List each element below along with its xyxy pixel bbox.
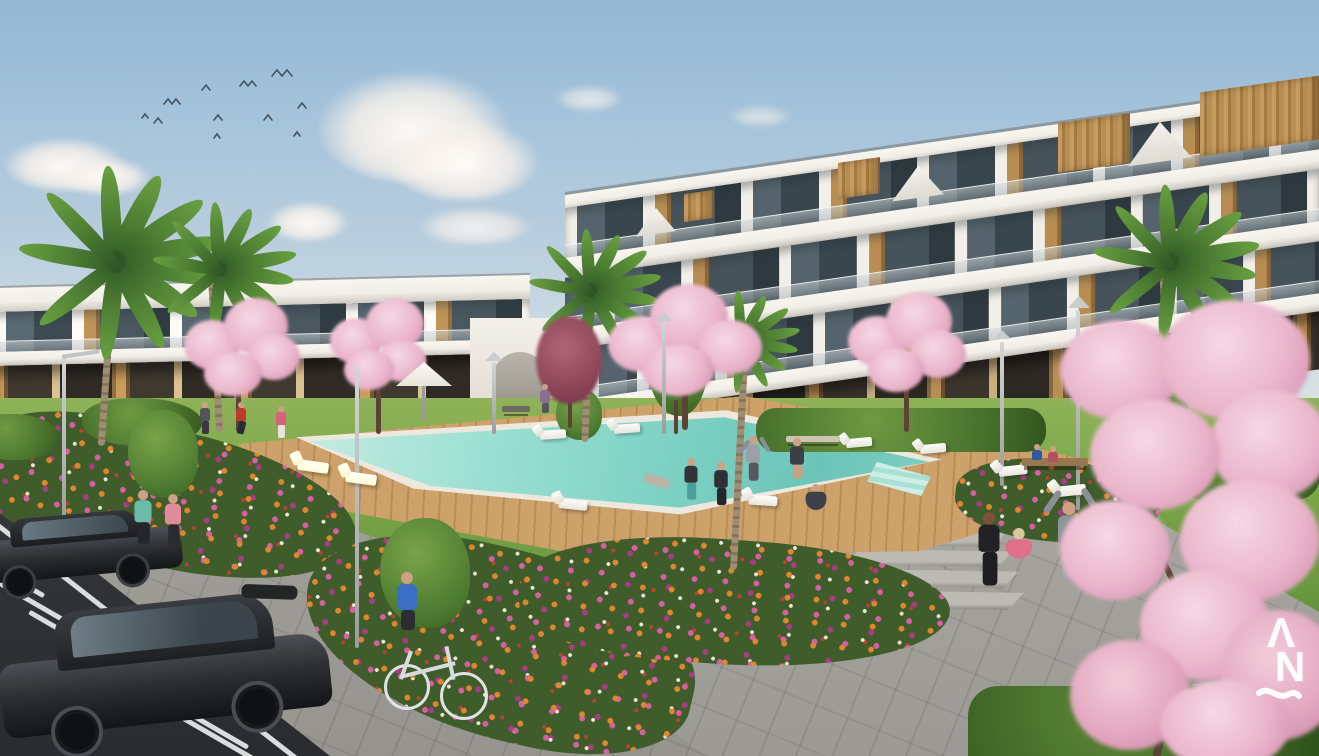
cloud [268, 202, 348, 240]
cherry-blossom-tree [846, 290, 971, 435]
cherry-blossom-tree [606, 282, 766, 432]
street-lamp [662, 322, 666, 434]
shrub [380, 518, 470, 628]
sun-lounger [748, 495, 777, 507]
walker [200, 402, 210, 434]
roof-wood-tower [684, 190, 714, 222]
sitting-woman-pink [1006, 528, 1033, 558]
street-lamp [62, 356, 66, 522]
birds [120, 60, 330, 155]
roof-wood-tower [838, 157, 880, 199]
cloud [388, 120, 538, 200]
yoga-seated [806, 484, 827, 510]
jogger-teal [135, 490, 152, 544]
cloud [556, 86, 622, 110]
cloud [420, 208, 530, 244]
street-lamp [355, 366, 359, 648]
watermark-logo: Λ N [1248, 616, 1318, 712]
stretching-man-gray [746, 436, 760, 481]
jogger-pink [276, 406, 286, 438]
jogger-pink2 [165, 494, 181, 545]
sun-lounger [540, 429, 567, 440]
standing-woman-black [979, 512, 1000, 586]
exerciser-tracksuit [714, 462, 728, 505]
person-near-building [540, 384, 550, 413]
street-lamp [492, 362, 496, 434]
stretching-man-red [236, 402, 246, 434]
sun-lounger [614, 423, 641, 434]
parasol-pole [422, 386, 425, 420]
man-dark-shorts [790, 438, 804, 479]
bench [502, 406, 530, 412]
logo-wave-icon [1256, 685, 1302, 707]
cloud [730, 106, 790, 126]
roof-wood-tower [1058, 113, 1130, 173]
render-scene: Λ N [0, 0, 1319, 756]
exerciser-teal-leggings [685, 458, 698, 500]
